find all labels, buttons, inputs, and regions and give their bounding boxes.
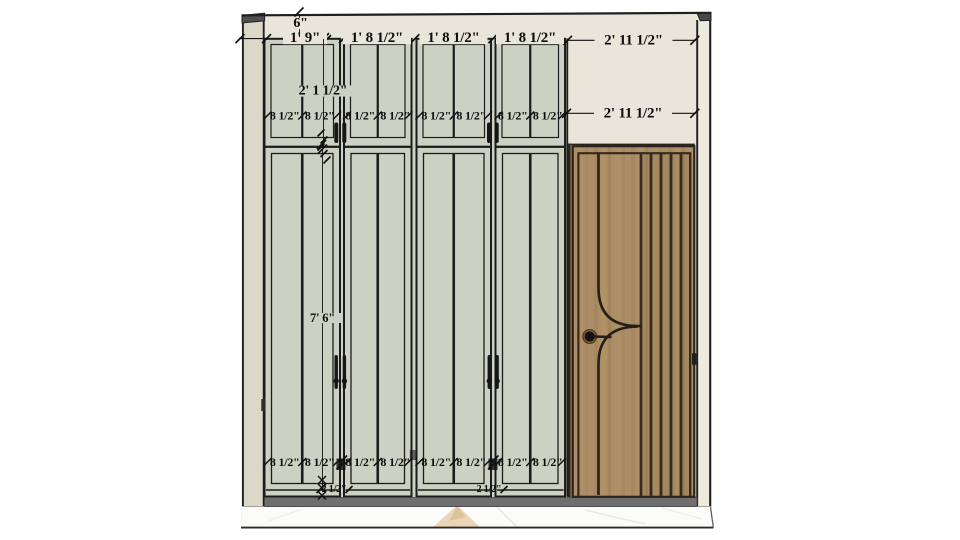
svg-text:8 1/2": 8 1/2"	[533, 109, 563, 123]
svg-text:2 1/2": 2 1/2"	[477, 484, 502, 495]
svg-text:1' 8 1/2": 1' 8 1/2"	[427, 30, 479, 46]
svg-text:8 1/2": 8 1/2"	[345, 455, 375, 469]
svg-text:8 1/2": 8 1/2"	[380, 109, 410, 123]
svg-text:8 1/2": 8 1/2"	[305, 455, 335, 469]
svg-text:2' 1 1/2": 2' 1 1/2"	[299, 84, 348, 99]
svg-text:1' 9": 1' 9"	[290, 30, 320, 46]
svg-text:8 1/2": 8 1/2"	[456, 455, 486, 469]
svg-text:8 1/2": 8 1/2"	[270, 109, 300, 123]
svg-text:8 1/2": 8 1/2"	[270, 455, 300, 469]
svg-text:2' 11 1/2": 2' 11 1/2"	[604, 32, 663, 48]
svg-text:6": 6"	[293, 16, 307, 31]
svg-text:1' 8 1/2": 1' 8 1/2"	[504, 30, 556, 46]
svg-text:8 1/2": 8 1/2"	[305, 109, 335, 123]
svg-text:2' 11 1/2": 2' 11 1/2"	[604, 105, 663, 121]
svg-text:8 1/2": 8 1/2"	[456, 109, 486, 123]
svg-text:8 1/2": 8 1/2"	[498, 109, 528, 123]
svg-text:8 1/2": 8 1/2"	[421, 455, 451, 469]
svg-text:8 1/2": 8 1/2"	[345, 109, 375, 123]
svg-text:1' 8 1/2": 1' 8 1/2"	[351, 30, 403, 46]
svg-text:2 1/2": 2 1/2"	[322, 484, 347, 495]
svg-text:8 1/2": 8 1/2"	[533, 455, 563, 469]
svg-text:7' 6": 7' 6"	[310, 311, 335, 325]
svg-text:8 1/2": 8 1/2"	[421, 109, 451, 123]
svg-text:8 1/2": 8 1/2"	[498, 455, 528, 469]
svg-text:8 1/2": 8 1/2"	[380, 455, 410, 469]
